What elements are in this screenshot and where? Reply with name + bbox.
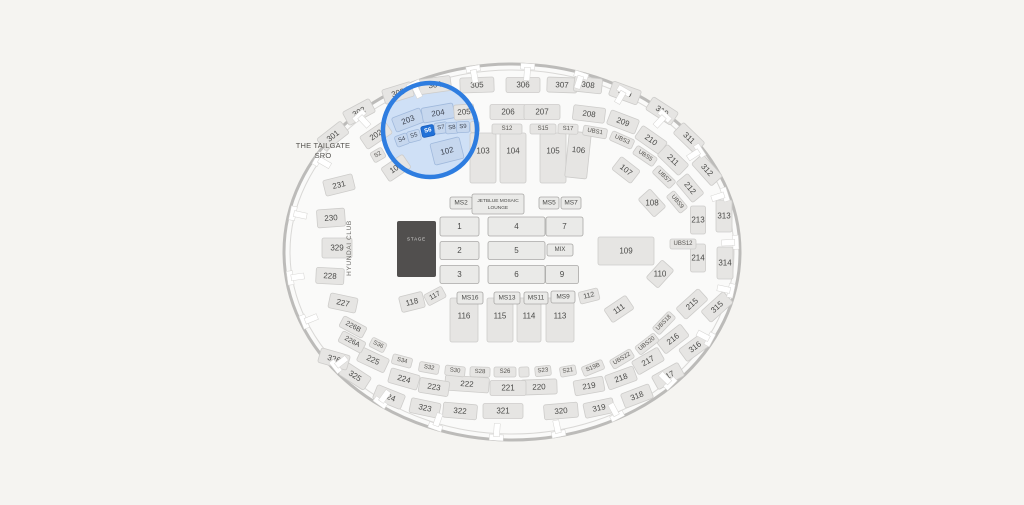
section-105[interactable]: 105 — [540, 133, 566, 183]
section-213[interactable]: 213 — [691, 206, 706, 234]
floor-section-JETBLUE MOSAIC-shape — [472, 194, 524, 214]
floor-section-MS9-label: MS9 — [556, 294, 570, 301]
section-321[interactable]: 321 — [483, 404, 523, 419]
suite-S15[interactable]: S15 — [530, 124, 556, 134]
tailgate-sro-section-label[interactable]: THE TAILGATE SRO — [288, 141, 358, 161]
section-106-shape — [565, 131, 592, 179]
section-230-label: 230 — [324, 213, 338, 223]
tailgate-line2: SRO — [288, 151, 358, 161]
floor-section-7-label: 7 — [562, 222, 567, 231]
section-313[interactable]: 313 — [716, 200, 732, 232]
floor-section-1[interactable]: 1 — [440, 217, 479, 236]
section-320-label: 320 — [554, 406, 569, 416]
hyundai-club-section-label[interactable]: HYUNDAI CLUB — [346, 203, 358, 293]
section-116[interactable]: 116 — [450, 298, 478, 342]
floor-section-MS5-label: MS5 — [542, 200, 556, 207]
floor-section-MS7[interactable]: MS7 — [561, 197, 581, 209]
floor-section-1-label: 1 — [457, 222, 462, 231]
suite-S6[interactable]: S6 — [420, 124, 435, 137]
suite-S30[interactable]: S30 — [445, 365, 466, 377]
floor-section-MS16[interactable]: MS16 — [457, 292, 483, 304]
section-113[interactable]: 113 — [546, 298, 574, 342]
suite-box[interactable] — [519, 367, 529, 377]
section-306[interactable]: 306 — [506, 78, 540, 93]
section-116-label: 116 — [458, 312, 471, 321]
section-207-label: 207 — [535, 108, 549, 117]
section-221-label: 221 — [501, 384, 515, 393]
floor-section-STAGE-label: STAGE — [407, 237, 426, 242]
suite-UBS12-label: UBS12 — [673, 241, 693, 247]
section-103-label: 103 — [476, 147, 490, 156]
floor-section-MS16-label: MS16 — [462, 295, 479, 302]
suite-S30-label: S30 — [449, 367, 461, 374]
section-313-label: 313 — [717, 212, 731, 221]
aisle-marker-stem — [524, 67, 531, 80]
section-206[interactable]: 206 — [490, 105, 526, 120]
section-220-label: 220 — [532, 382, 546, 391]
section-115[interactable]: 115 — [487, 298, 513, 342]
section-322-label: 322 — [453, 406, 468, 416]
suite-S12-label: S12 — [502, 126, 513, 132]
section-214-label: 214 — [691, 254, 705, 263]
floor-section-MS13-label: MS13 — [499, 295, 516, 302]
suite-S17-label: S17 — [563, 126, 575, 132]
floor-section-STAGE-shape — [397, 221, 436, 277]
floor-section-4-label: 4 — [514, 222, 519, 231]
suite-S8-label: S8 — [448, 125, 456, 132]
section-314-label: 314 — [718, 259, 732, 268]
section-115-label: 115 — [494, 312, 507, 321]
section-113-label: 113 — [554, 312, 567, 321]
floor-section-4[interactable]: 4 — [488, 217, 545, 236]
section-228-label: 228 — [323, 271, 337, 281]
floor-section-MS5[interactable]: MS5 — [539, 197, 559, 209]
section-228[interactable]: 228 — [316, 267, 345, 284]
suite-S28[interactable]: S28 — [470, 367, 490, 378]
floor-section-6[interactable]: 6 — [488, 266, 545, 284]
suite-S9-label: S9 — [459, 124, 467, 130]
section-307-label: 307 — [555, 80, 569, 89]
suite-S26[interactable]: S26 — [494, 367, 516, 377]
floor-section-3-label: 3 — [457, 270, 462, 279]
section-108-label: 108 — [645, 199, 659, 208]
aisle-marker-stem — [493, 423, 500, 436]
section-114-label: 114 — [523, 312, 536, 321]
floor-section-MIX-label: MIX — [555, 247, 566, 253]
floor-section-MS9[interactable]: MS9 — [551, 291, 575, 303]
aisle-marker-stem — [722, 239, 735, 246]
suite-UBS12[interactable]: UBS12 — [670, 239, 696, 249]
section-110-label: 110 — [654, 270, 667, 279]
section-306-label: 306 — [516, 81, 530, 90]
floor-section-5[interactable]: 5 — [488, 242, 545, 260]
section-104-shape — [500, 133, 526, 183]
section-230[interactable]: 230 — [316, 208, 345, 228]
section-222[interactable]: 222 — [445, 375, 490, 393]
section-109[interactable]: 109 — [598, 237, 654, 265]
suite-S23-label: S23 — [537, 367, 549, 374]
floor-section-5-label: 5 — [514, 246, 519, 255]
section-221[interactable]: 221 — [490, 381, 526, 396]
suite-shape — [519, 367, 529, 377]
section-106[interactable]: 106 — [565, 131, 592, 179]
arena-map-svg: 3013023033043053063073083093103113123133… — [0, 0, 1024, 500]
section-208-label: 208 — [582, 109, 597, 120]
floor-section-2[interactable]: 2 — [440, 242, 479, 260]
section-104[interactable]: 104 — [500, 133, 526, 183]
suite-S9[interactable]: S9 — [456, 121, 470, 133]
section-104-label: 104 — [506, 147, 520, 156]
floor-section-3[interactable]: 3 — [440, 266, 479, 284]
floor-section-MS2[interactable]: MS2 — [450, 197, 472, 209]
floor-section-STAGE[interactable]: STAGE — [397, 221, 436, 277]
floor-section-MS11[interactable]: MS11 — [524, 292, 548, 304]
suite-S26-label: S26 — [500, 369, 511, 375]
section-114[interactable]: 114 — [517, 298, 541, 342]
tailgate-line1: THE TAILGATE — [288, 141, 358, 151]
floor-section-9[interactable]: 9 — [546, 266, 579, 284]
section-105-shape — [540, 133, 566, 183]
section-207[interactable]: 207 — [524, 105, 560, 120]
section-307[interactable]: 307 — [547, 77, 578, 93]
section-206-label: 206 — [501, 108, 515, 117]
section-213-label: 213 — [691, 216, 705, 225]
suite-S17[interactable]: S17 — [558, 124, 578, 135]
section-322[interactable]: 322 — [442, 402, 477, 420]
floor-section-MS2-label: MS2 — [454, 200, 468, 207]
section-320[interactable]: 320 — [543, 402, 578, 420]
section-321-label: 321 — [496, 407, 510, 416]
floor-section-JETBLUE MOSAIC[interactable]: JETBLUE MOSAICLOUNGE — [472, 194, 524, 214]
section-329-label: 329 — [330, 244, 344, 253]
suite-S28-label: S28 — [475, 369, 487, 375]
section-308-label: 308 — [581, 80, 596, 90]
floor-section-2-label: 2 — [457, 246, 462, 255]
floor-section-9-label: 9 — [560, 270, 565, 279]
section-106-label: 106 — [571, 145, 586, 155]
floor-section-MS11-label: MS11 — [528, 295, 545, 302]
floor-section-7[interactable]: 7 — [546, 217, 583, 236]
section-105-label: 105 — [546, 147, 560, 156]
section-222-label: 222 — [460, 379, 474, 389]
suite-S15-label: S15 — [538, 126, 549, 132]
section-109-label: 109 — [619, 247, 633, 256]
floor-section-6-label: 6 — [514, 270, 519, 279]
suite-S12[interactable]: S12 — [492, 124, 522, 134]
seating-map: 3013023033043053063073083093103113123133… — [0, 0, 1024, 500]
floor-section-MS7-label: MS7 — [564, 200, 578, 207]
section-314[interactable]: 314 — [717, 247, 733, 279]
floor-section-MS13[interactable]: MS13 — [494, 292, 520, 304]
floor-section-MIX[interactable]: MIX — [547, 244, 573, 256]
suite-S23[interactable]: S23 — [535, 365, 552, 377]
